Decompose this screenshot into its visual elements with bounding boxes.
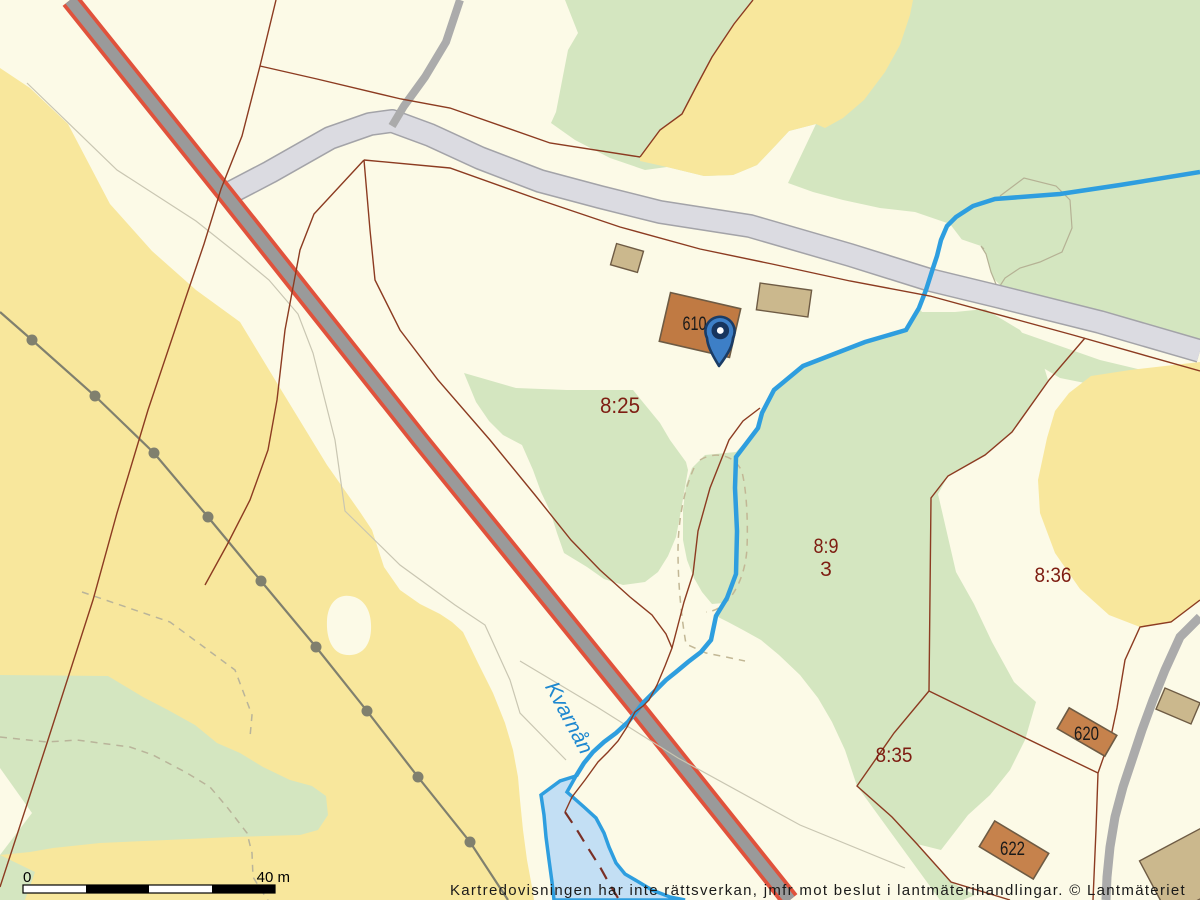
- svg-text:8:35: 8:35: [876, 744, 913, 767]
- svg-text:8:36: 8:36: [1035, 564, 1072, 587]
- svg-text:3: 3: [820, 558, 832, 581]
- svg-text:40 m: 40 m: [257, 869, 290, 886]
- svg-text:0: 0: [23, 869, 31, 886]
- svg-text:8:9: 8:9: [814, 535, 839, 558]
- svg-text:Kartredovisningen har inte rät: Kartredovisningen har inte rättsverkan, …: [450, 882, 1186, 899]
- svg-text:622: 622: [1000, 839, 1025, 860]
- svg-text:610: 610: [683, 314, 707, 335]
- svg-text:620: 620: [1074, 724, 1099, 745]
- svg-text:8:25: 8:25: [600, 393, 640, 418]
